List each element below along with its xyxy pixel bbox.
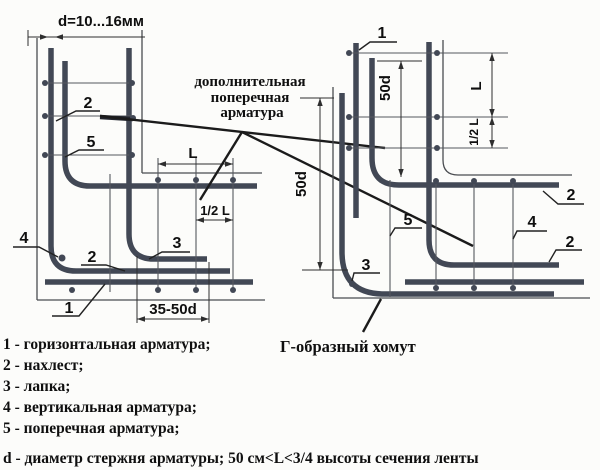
bar-section-dot xyxy=(433,178,439,184)
callout-5-transverse: 5 xyxy=(87,134,96,151)
callout-leader xyxy=(549,250,582,262)
dim-arrow xyxy=(489,117,494,125)
bar-section-dot xyxy=(230,177,236,183)
bar-section-dot xyxy=(230,287,236,293)
bar-section-dot xyxy=(155,287,161,293)
right-upper-bent-bar xyxy=(372,58,559,185)
rebar-corner-diagram: d=10...16мм xyxy=(0,0,600,470)
dim-label-50d-inner: 50d xyxy=(377,75,394,101)
callout-2-overlap-wall: 2 xyxy=(84,95,93,112)
dim-arrow xyxy=(317,262,322,270)
callout-2-overlap-slab: 2 xyxy=(88,249,97,266)
right-dimension-L-halfL: L 1/2 L xyxy=(467,53,495,148)
dim-arrow xyxy=(489,53,494,61)
clamp-label-group: Г-образный хомут xyxy=(280,299,416,356)
callout-3-foot: 3 xyxy=(173,235,182,252)
clamp-leader xyxy=(363,299,381,332)
bar-section-dot xyxy=(346,50,352,56)
dim-arrow xyxy=(201,316,209,321)
bar-section-dot xyxy=(42,152,48,158)
dim-arrow xyxy=(317,98,322,106)
dim-arrow xyxy=(489,140,494,148)
clamp-label: Г-образный хомут xyxy=(280,337,416,356)
callout-leader xyxy=(352,273,380,281)
bar-section-dot xyxy=(434,50,440,56)
dim-arrow xyxy=(196,217,204,222)
legend-item-1: 1 - горизонтальная арматура; xyxy=(3,336,211,353)
dim-arrow xyxy=(225,161,233,166)
callout-3-foot: 3 xyxy=(362,257,371,274)
legend-item-5: 5 - поперечная арматура; xyxy=(3,420,180,437)
technical-drawing: d=10...16мм xyxy=(0,0,600,470)
bar-section-dot xyxy=(346,145,352,151)
bar-section-dot xyxy=(434,114,440,120)
legend-item-3: 3 - лапка; xyxy=(3,378,70,395)
left-diagram: d=10...16мм xyxy=(13,13,265,323)
bar-section-dot xyxy=(510,178,516,184)
bar-section-dot xyxy=(42,80,48,86)
dim-label-50d-outer: 50d xyxy=(293,171,310,197)
bar-section-dot xyxy=(193,287,199,293)
bar-section-dot xyxy=(42,113,48,119)
left-dimension-half-L: 1/2 L xyxy=(196,203,233,223)
bar-section-dot xyxy=(155,177,161,183)
bar-section-dot xyxy=(193,177,199,183)
callout-4-vertical: 4 xyxy=(528,214,537,231)
note-leader-left xyxy=(200,132,242,200)
note-line-2: поперечная xyxy=(211,90,290,106)
note-line-1: дополнительная xyxy=(194,74,305,90)
dim-label-half-L: 1/2 L xyxy=(200,203,230,218)
dim-arrow xyxy=(398,169,403,177)
dim-arrow xyxy=(225,217,233,222)
right-diagram: 50d 50d L 1/2 L 1 2 4 2 5 xyxy=(280,25,590,356)
dim-label-35-50d: 35-50d xyxy=(149,301,197,318)
bar-section-dot xyxy=(129,152,135,158)
clamp-foot-dot xyxy=(349,281,355,287)
callout-leader xyxy=(390,228,422,236)
bar-section-dot xyxy=(129,80,135,86)
bar-diameter-dimension: d=10...16мм xyxy=(28,13,145,46)
note-line-3: арматура xyxy=(220,105,284,121)
dim-arrow xyxy=(137,316,145,321)
diameter-arrow-left xyxy=(40,34,48,39)
dim-label-L-right: L xyxy=(468,81,485,90)
callout-leader xyxy=(513,231,547,239)
legend-item-2: 2 - нахлест; xyxy=(3,357,84,374)
bar-section-dot xyxy=(433,285,439,291)
dim-label-L: L xyxy=(188,145,197,162)
callout-2-overlap-bottom: 2 xyxy=(566,234,575,251)
right-inner-edge xyxy=(443,40,572,175)
bar-section-dot xyxy=(471,285,477,291)
dim-arrow xyxy=(158,161,166,166)
dim-label-half-L-right: 1/2 L xyxy=(467,118,481,145)
callout-1-vertical-bar: 1 xyxy=(378,25,387,42)
callout-2-overlap-top: 2 xyxy=(567,187,576,204)
callout-leader xyxy=(359,42,397,50)
callout-4-vertical-bar: 4 xyxy=(20,230,29,247)
callout-leader xyxy=(543,191,584,204)
bar-diameter-label: d=10...16мм xyxy=(58,13,144,30)
bar-section-dot xyxy=(69,287,75,293)
vertical-bar-section-dot xyxy=(59,255,66,262)
bar-section-dot xyxy=(346,114,352,120)
callout-5-transverse: 5 xyxy=(404,212,413,229)
dim-arrow xyxy=(398,61,403,69)
bar-section-dot xyxy=(510,285,516,291)
dim-arrow xyxy=(489,109,494,117)
legend-footnote: d - диаметр стержня арматуры; 50 см<L<3/… xyxy=(3,450,479,467)
bar-section-dot xyxy=(434,145,440,151)
additional-transverse-note: дополнительная поперечная арматура xyxy=(100,74,473,246)
right-dimension-50d-inner: 50d xyxy=(377,61,422,177)
callout-1-horizontal-bar: 1 xyxy=(65,300,74,317)
bar-section-dot xyxy=(471,178,477,184)
callout-leader xyxy=(65,150,104,157)
legend-item-4: 4 - вертикальная арматура; xyxy=(3,399,197,416)
diameter-arrow-right xyxy=(55,34,63,39)
